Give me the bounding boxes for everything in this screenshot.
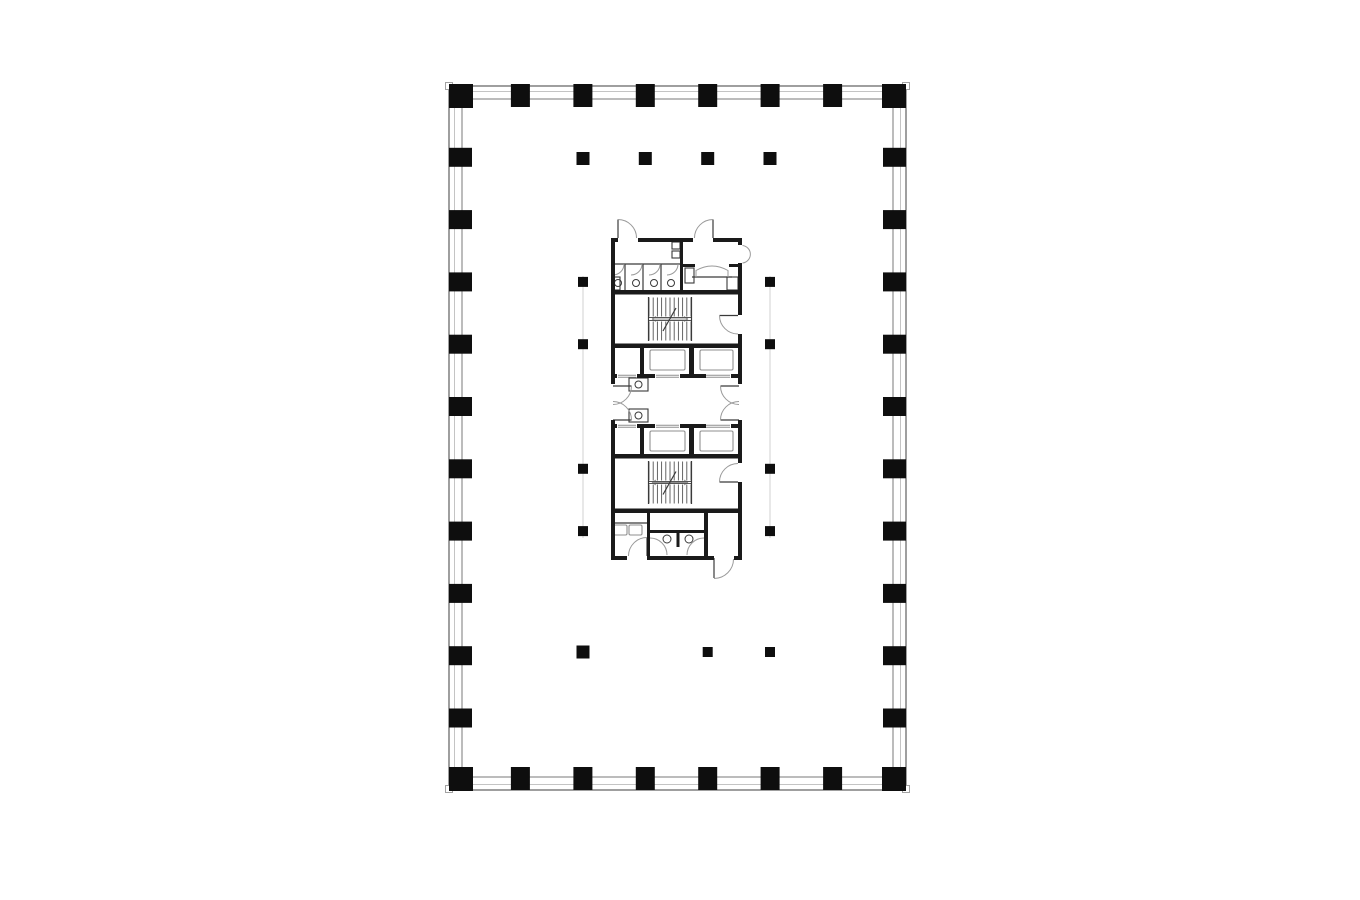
interior-columns — [577, 152, 777, 659]
plumbing-fixture — [663, 535, 671, 543]
core-wall-segment — [731, 374, 742, 378]
core-wall-segment — [689, 428, 694, 454]
perimeter-column — [511, 767, 530, 790]
core-wall-segment — [734, 556, 742, 560]
core-walls — [611, 238, 742, 560]
perimeter-column — [449, 335, 472, 354]
core-wall-segment — [640, 428, 644, 454]
interior-column — [639, 152, 652, 165]
core-fixtures-light — [614, 280, 733, 544]
interior-column — [701, 152, 714, 165]
core-wall-segment — [611, 424, 617, 428]
door-swing-arc — [649, 264, 660, 275]
perimeter-column — [449, 459, 472, 478]
perimeter-column — [883, 522, 906, 541]
corner-column — [882, 84, 906, 108]
door-swing-arc — [695, 220, 714, 239]
perimeter-column — [636, 767, 655, 790]
perimeter-column — [883, 210, 906, 229]
door-swing-arc — [720, 464, 739, 483]
perimeter-column — [883, 335, 906, 354]
partition-outline — [629, 409, 648, 422]
perimeter-column — [449, 272, 472, 291]
perimeter-columns — [449, 84, 906, 791]
core-wall-segment — [611, 238, 615, 384]
perimeter-column — [698, 767, 717, 790]
partition-outline — [672, 242, 680, 249]
partition-outline — [672, 251, 680, 258]
plumbing-fixture — [651, 280, 658, 287]
perimeter-column — [449, 210, 472, 229]
door-swing-arc — [687, 538, 704, 555]
perimeter-column — [883, 459, 906, 478]
core-wall-segment — [640, 348, 644, 374]
fixture-outline — [650, 431, 685, 451]
interior-column — [765, 339, 775, 349]
core-wall-segment — [689, 348, 694, 374]
curtain-wall-inner-line — [462, 99, 893, 777]
interior-column — [764, 152, 777, 165]
plumbing-fixture — [668, 280, 675, 287]
interior-column — [577, 646, 590, 659]
interior-column — [578, 464, 588, 474]
partition-outline — [629, 378, 648, 391]
partition-outline — [685, 268, 694, 283]
perimeter-column — [573, 84, 592, 107]
curtain-wall-outer-line — [449, 86, 906, 790]
perimeter-column — [449, 584, 472, 603]
perimeter-column — [761, 767, 780, 790]
core-wall-segment — [611, 454, 742, 459]
interior-column — [765, 464, 775, 474]
interior-column — [578, 339, 588, 349]
stairs — [649, 298, 691, 504]
core-wall-segment — [680, 424, 706, 428]
fixture-outline — [650, 350, 685, 370]
perimeter-column — [449, 646, 472, 665]
perimeter-column — [883, 584, 906, 603]
door-swing-arc — [618, 220, 637, 239]
plumbing-fixture — [635, 381, 642, 388]
door-swing-arc — [720, 316, 739, 335]
perimeter-column — [883, 709, 906, 728]
core-wall-segment — [680, 374, 706, 378]
perimeter-column — [823, 84, 842, 107]
core-wall-segment — [611, 290, 742, 295]
core-wall-segment — [650, 530, 704, 533]
interior-column — [765, 647, 775, 657]
core-wall-segment — [637, 424, 655, 428]
floor-plan-drawing — [0, 0, 1360, 900]
interior-column — [703, 647, 713, 657]
core-wall-segment — [738, 482, 742, 560]
core-wall-segment — [647, 556, 714, 560]
fixture-outline — [614, 525, 627, 535]
door-swing-arc — [629, 538, 648, 557]
core-wall-segment — [647, 513, 650, 556]
interior-column — [765, 277, 775, 287]
perimeter-column — [761, 84, 780, 107]
perimeter-column — [573, 767, 592, 790]
perimeter-column — [511, 84, 530, 107]
fixture-outline — [700, 350, 733, 370]
perimeter-curtain-wall — [449, 86, 906, 790]
interior-column — [578, 277, 588, 287]
service-core — [611, 220, 750, 579]
corner-column — [449, 767, 473, 791]
core-wall-segment — [611, 556, 627, 560]
perimeter-column — [449, 397, 472, 416]
curtain-wall-mid-line — [455, 92, 901, 785]
perimeter-column — [883, 397, 906, 416]
perimeter-column — [449, 522, 472, 541]
plumbing-fixture — [633, 280, 640, 287]
corner-column — [882, 767, 906, 791]
core-wall-segment — [680, 238, 683, 291]
perimeter-column — [449, 709, 472, 728]
core-wall-segment — [611, 509, 742, 514]
corner-tick-marks — [446, 83, 910, 793]
perimeter-column — [883, 272, 906, 291]
perimeter-column — [883, 646, 906, 665]
core-wall-segment — [704, 513, 708, 556]
perimeter-column — [823, 767, 842, 790]
core-wall-segment — [683, 264, 695, 267]
plumbing-fixture — [685, 535, 693, 543]
core-wall-segment — [677, 533, 680, 547]
door-swing-arc — [650, 538, 667, 555]
core-wall-segment — [729, 264, 738, 267]
plumbing-fixture — [635, 412, 642, 419]
door-swing-arc — [631, 264, 642, 275]
core-wall-segment — [611, 344, 742, 349]
core-wall-segment — [731, 424, 742, 428]
partition-outline — [727, 277, 738, 290]
core-wall-segment — [638, 238, 693, 242]
interior-column — [765, 526, 775, 536]
perimeter-column — [698, 84, 717, 107]
core-wall-segment — [611, 420, 615, 560]
drawing-viewport — [0, 0, 1360, 900]
core-wall-segment — [713, 238, 742, 242]
fixture-outline — [700, 431, 733, 451]
door-swing-arc — [743, 246, 751, 264]
door-swing-arc — [714, 559, 734, 579]
core-wall-segment — [738, 238, 742, 245]
interior-column — [578, 526, 588, 536]
perimeter-column — [883, 148, 906, 167]
core-wall-segment — [637, 374, 655, 378]
fixture-outline — [629, 525, 642, 535]
perimeter-column — [636, 84, 655, 107]
core-wall-segment — [611, 374, 617, 378]
perimeter-column — [449, 148, 472, 167]
door-swing-arc — [696, 266, 728, 277]
interior-column — [577, 152, 590, 165]
core-wall-segment — [738, 263, 742, 315]
door-swing-arc — [667, 264, 678, 275]
corner-column — [449, 84, 473, 108]
